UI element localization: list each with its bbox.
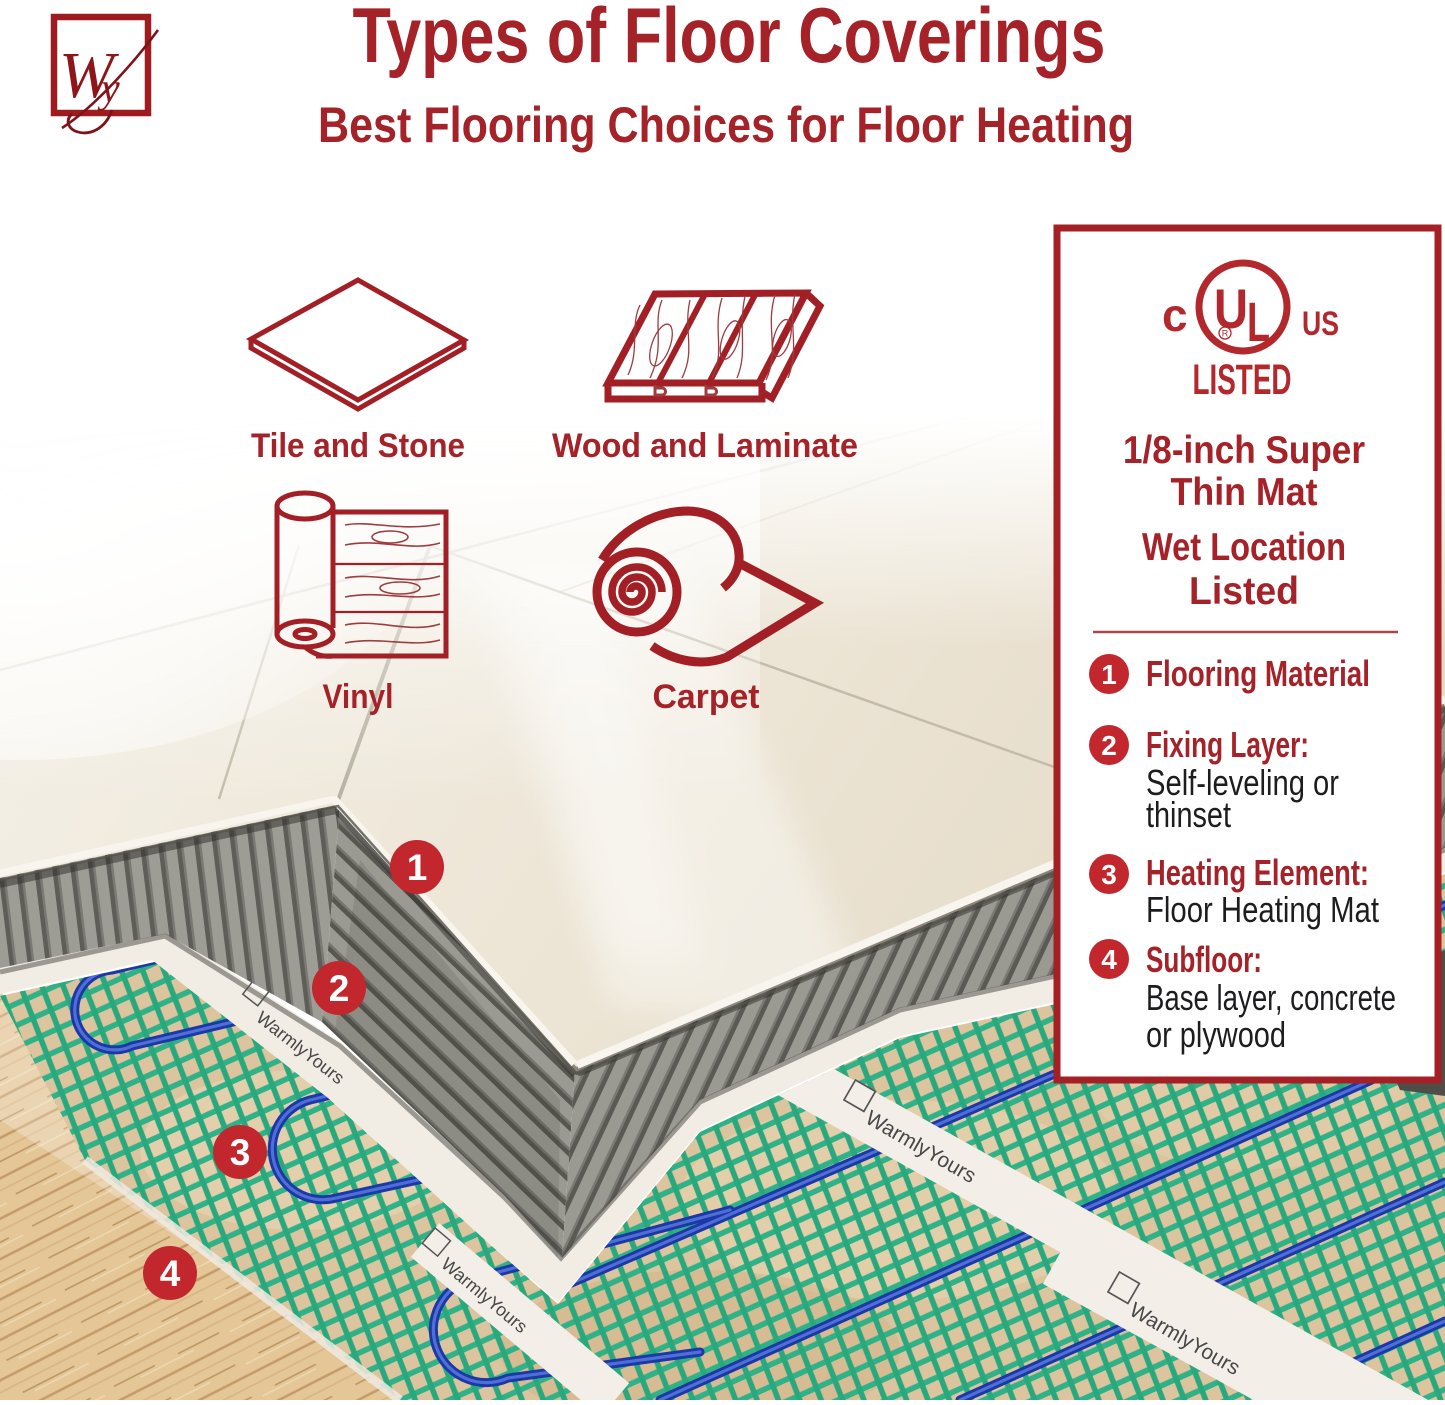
svg-text:Base layer, concrete: Base layer, concrete [1146,977,1396,1018]
svg-text:Floor Heating Mat: Floor Heating Mat [1146,889,1379,930]
svg-text:Listed: Listed [1189,570,1299,613]
svg-text:c: c [1162,289,1188,341]
svg-text:1: 1 [407,847,428,888]
svg-text:4: 4 [1101,944,1117,975]
svg-text:R: R [1222,329,1229,339]
svg-text:Carpet: Carpet [653,678,760,716]
svg-text:Thin Mat: Thin Mat [1171,471,1318,514]
svg-text:Best Flooring Choices for Floo: Best Flooring Choices for Floor Heating [318,97,1134,153]
svg-text:LISTED: LISTED [1193,356,1292,404]
svg-text:or plywood: or plywood [1146,1014,1286,1055]
svg-text:1: 1 [1101,659,1117,690]
svg-text:Fixing Layer:: Fixing Layer: [1146,724,1309,765]
svg-text:1/8-inch Super: 1/8-inch Super [1123,429,1365,472]
svg-text:thinset: thinset [1146,794,1231,835]
svg-text:Vinyl: Vinyl [323,678,394,716]
svg-text:2: 2 [1101,730,1117,761]
svg-text:US: US [1302,305,1339,343]
svg-text:Flooring Material: Flooring Material [1146,653,1370,694]
svg-text:4: 4 [160,1253,181,1294]
svg-text:3: 3 [1101,859,1117,890]
svg-text:Heating Element:: Heating Element: [1146,852,1369,893]
svg-text:Subfloor:: Subfloor: [1146,939,1262,980]
svg-text:Types of Floor Coverings: Types of Floor Coverings [353,0,1106,79]
svg-text:2: 2 [329,968,350,1009]
svg-text:Wood and Laminate: Wood and Laminate [552,427,858,465]
svg-text:L: L [1247,290,1270,353]
svg-text:3: 3 [230,1132,251,1173]
svg-text:Wet Location: Wet Location [1142,526,1346,569]
svg-text:Tile and Stone: Tile and Stone [251,427,465,465]
